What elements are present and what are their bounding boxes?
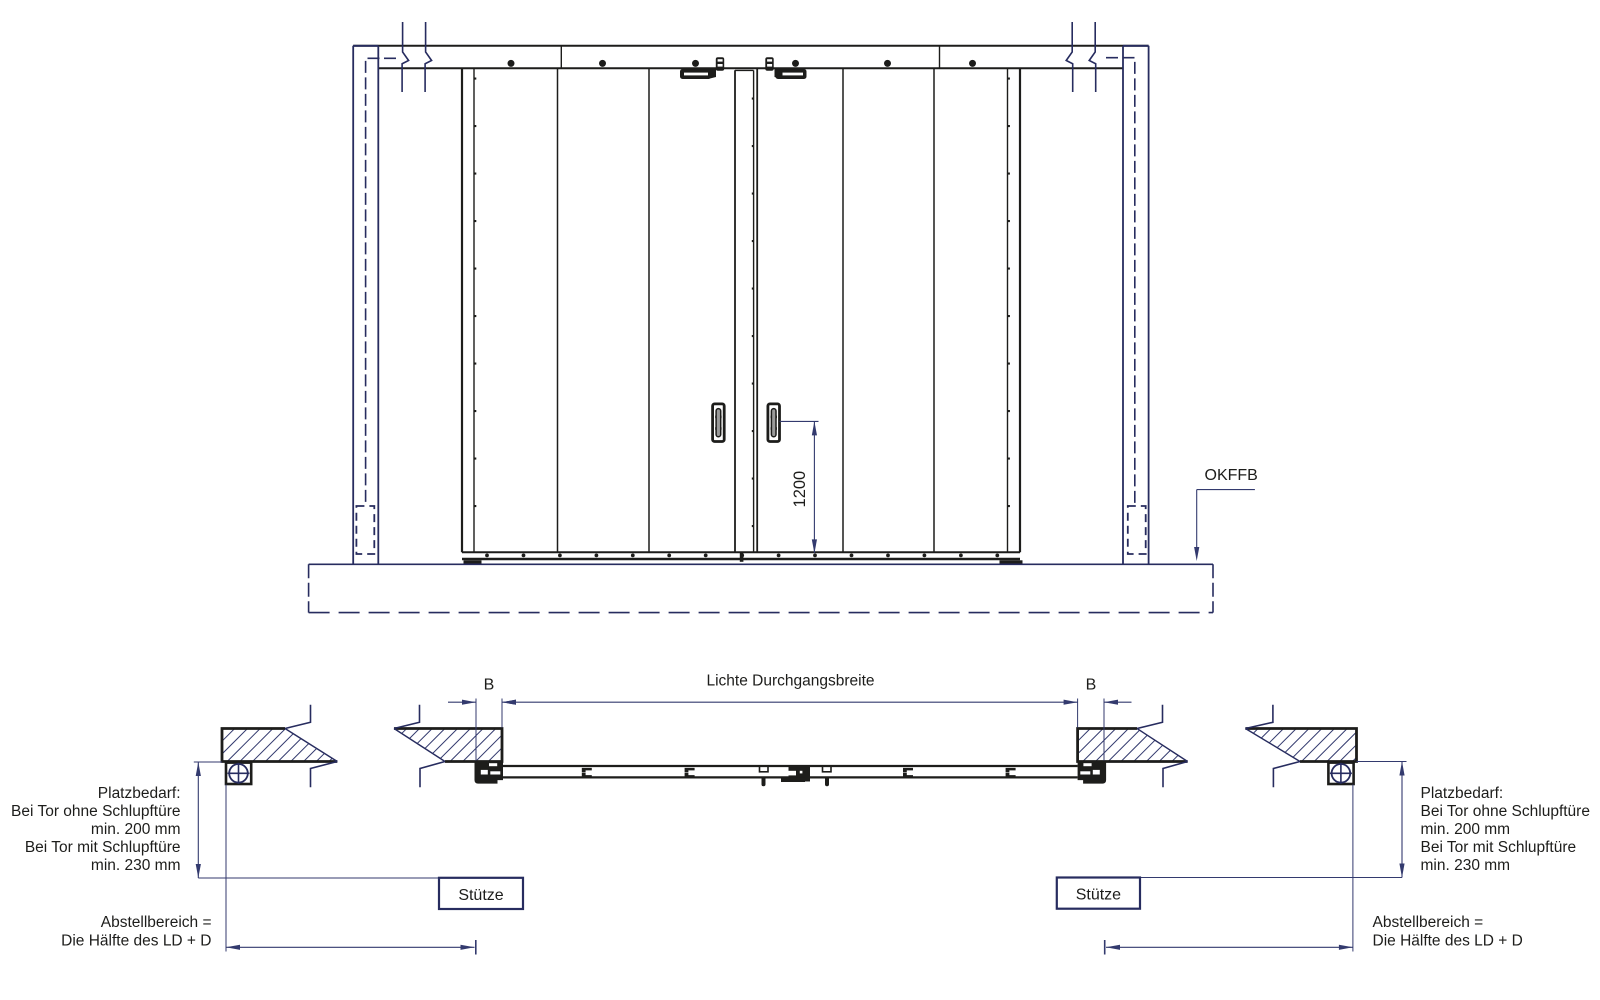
svg-text:min. 230 mm: min. 230 mm [1421,857,1511,874]
svg-text:Bei Tor ohne Schlupftüre: Bei Tor ohne Schlupftüre [1421,803,1590,820]
svg-text:min. 200 mm: min. 200 mm [91,821,181,838]
svg-text:Lichte Durchgangsbreite: Lichte Durchgangsbreite [706,672,874,689]
svg-text:Stütze: Stütze [1076,887,1121,904]
svg-text:Die Hälfte des LD + D: Die Hälfte des LD + D [1373,932,1523,949]
svg-text:min. 200 mm: min. 200 mm [1421,821,1511,838]
svg-text:Bei Tor mit Schlupftüre: Bei Tor mit Schlupftüre [25,839,181,856]
svg-text:Bei Tor mit Schlupftüre: Bei Tor mit Schlupftüre [1421,839,1577,856]
svg-text:OKFFB: OKFFB [1205,467,1258,484]
svg-text:min. 230 mm: min. 230 mm [91,857,181,874]
svg-text:Abstellbereich =: Abstellbereich = [101,914,212,931]
svg-text:B: B [1086,677,1097,694]
svg-text:Platzbedarf:: Platzbedarf: [98,785,181,802]
svg-text:B: B [484,677,495,694]
svg-text:Bei Tor ohne Schlupftüre: Bei Tor ohne Schlupftüre [11,803,180,820]
svg-text:Stütze: Stütze [458,887,503,904]
svg-text:Abstellbereich =: Abstellbereich = [1373,914,1484,931]
svg-text:1200: 1200 [791,471,809,508]
svg-text:Die Hälfte des LD + D: Die Hälfte des LD + D [61,932,211,949]
svg-text:Platzbedarf:: Platzbedarf: [1421,785,1504,802]
